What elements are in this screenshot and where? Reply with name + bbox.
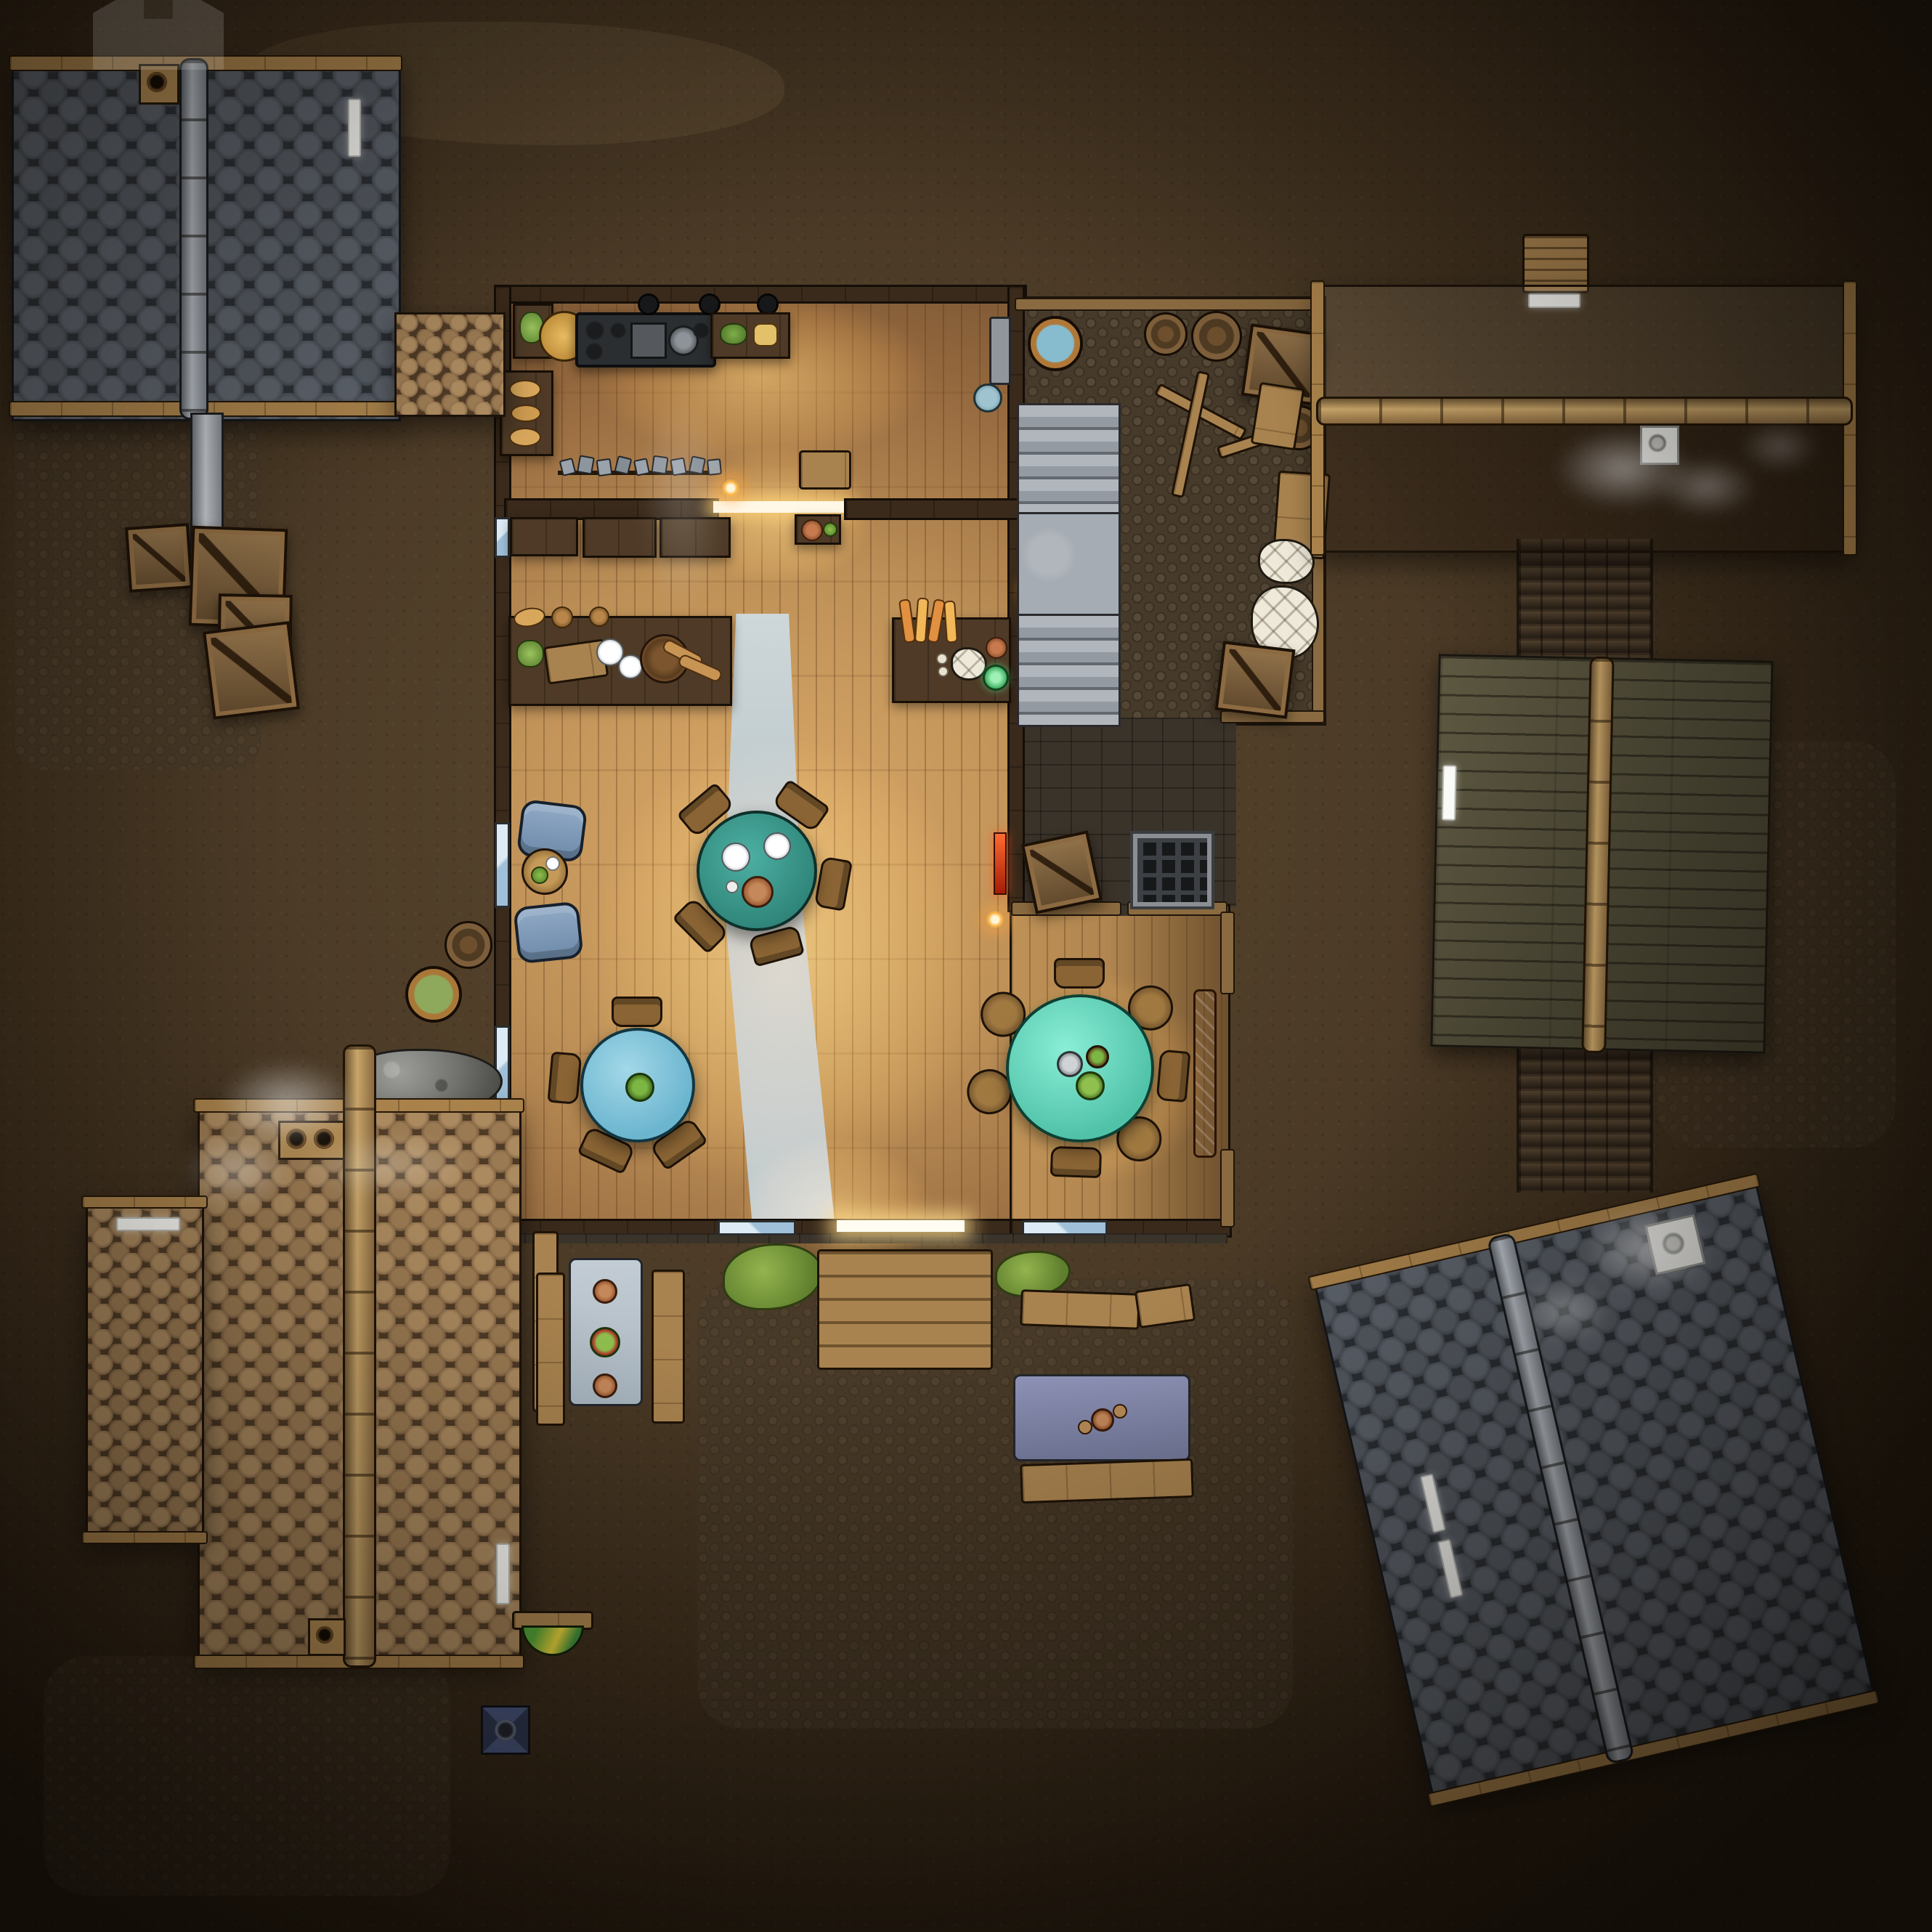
garlic: [936, 653, 948, 665]
chair: [1050, 1146, 1102, 1178]
skylight: [1442, 765, 1457, 820]
skylight: [496, 1543, 510, 1604]
cup: [726, 880, 739, 893]
porch-lantern: [985, 909, 1005, 930]
divider-wall-east: [844, 498, 1027, 520]
skylight: [1528, 293, 1580, 308]
stairs-landing: [1017, 512, 1121, 618]
chair: [1054, 958, 1105, 989]
plate: [618, 654, 643, 679]
bench: [536, 1273, 565, 1426]
building-sw-small-roof: [86, 1200, 204, 1540]
porch-rail: [1220, 912, 1235, 994]
barrel: [1191, 311, 1242, 362]
skylight: [348, 99, 361, 157]
porch-rail: [1220, 1149, 1235, 1227]
potted-plant: [625, 1073, 654, 1102]
building-sw-chimney: [308, 1618, 346, 1656]
chimney-flue: [1648, 434, 1667, 452]
west-window: [495, 517, 510, 558]
chimney-flue: [1660, 1230, 1687, 1257]
south-window: [718, 1220, 796, 1235]
plate: [763, 832, 791, 860]
bagel: [589, 606, 609, 627]
red-wall-banner: [994, 832, 1007, 895]
cheese-slices: [753, 323, 778, 346]
bread-loaf: [509, 380, 541, 399]
flour-sack: [1258, 539, 1315, 584]
lean-to-ridge-beam: [1581, 657, 1614, 1054]
herb-counter: [710, 312, 790, 359]
crate: [203, 621, 300, 720]
salad-greens: [516, 640, 544, 667]
bar-cabinet: [659, 517, 731, 558]
side-table: [521, 848, 568, 895]
south-foundation: [494, 1233, 1227, 1243]
jam-jar: [986, 637, 1007, 659]
bench: [1020, 1458, 1194, 1503]
plate: [721, 843, 750, 872]
skylight: [116, 1217, 180, 1231]
tavern-building: [494, 283, 1402, 1249]
crate: [1215, 641, 1296, 718]
building-se: [1313, 1180, 1871, 1798]
barrel: [1144, 312, 1188, 356]
west-window: [495, 822, 510, 908]
porch-window: [1022, 1220, 1108, 1235]
terracotta-plate: [801, 519, 823, 541]
bench: [652, 1270, 685, 1424]
west-awning-roof: [394, 312, 506, 417]
south-door-opening: [837, 1220, 965, 1232]
bread-loaf: [509, 428, 541, 447]
outdoor-table-east: [1013, 1374, 1190, 1461]
tankard-icon: [707, 458, 722, 476]
tankard-icon: [596, 458, 612, 477]
tankard-icon: [689, 455, 706, 475]
building-sw-small-eave: [81, 1531, 208, 1544]
stove-burner: [585, 343, 603, 360]
dining-table-porch: [1006, 994, 1154, 1142]
bread-shelf: [500, 370, 553, 456]
bowl: [593, 1373, 617, 1398]
potted-plant: [1076, 1071, 1105, 1100]
stove-hatch: [630, 322, 667, 359]
tankard-icon: [577, 455, 595, 474]
cellar-grate: [1133, 834, 1211, 906]
chimney-flue: [316, 1626, 333, 1644]
battle-map-canvas: [0, 0, 1932, 1932]
brazier-bowl: [495, 1719, 516, 1741]
candle-tray: [1057, 1051, 1083, 1077]
stove-burner: [585, 321, 604, 340]
dish: [545, 856, 560, 871]
painted-shield: [521, 1625, 584, 1656]
bench: [1020, 1289, 1140, 1330]
mug: [1078, 1420, 1092, 1434]
salad-bowl: [531, 866, 548, 884]
bar-cabinet: [510, 517, 578, 556]
tankard-icon: [670, 457, 687, 476]
stone-stairs-lower: [1017, 614, 1121, 727]
outdoor-table-west: [569, 1258, 643, 1406]
stove-burner: [693, 322, 709, 338]
building-ne-chimney: [1640, 426, 1679, 465]
hanging-pot: [638, 293, 659, 315]
dining-table-west: [580, 1028, 695, 1142]
side-shelf: [795, 514, 841, 545]
entry-steps: [817, 1249, 993, 1370]
crate: [125, 523, 193, 593]
building-sw-small-eave: [81, 1196, 208, 1209]
glowing-plate: [983, 665, 1009, 691]
iron-stove: [575, 312, 716, 368]
garlic: [938, 666, 949, 677]
crate: [1021, 830, 1103, 914]
stove-burner: [610, 322, 626, 338]
chair: [547, 1052, 582, 1105]
cobble-patch: [44, 1656, 450, 1896]
tankard-rack: [558, 453, 725, 482]
dining-table-north: [697, 811, 817, 931]
lean-to-roof: [1430, 654, 1773, 1054]
rain-barrel: [1028, 316, 1083, 371]
tankard-icon: [633, 458, 650, 476]
chimney-flue: [147, 72, 167, 92]
trestle-table: [1193, 989, 1217, 1158]
barrel: [445, 921, 492, 969]
flower-pot: [823, 522, 837, 537]
house-logo-icon: [93, 0, 224, 70]
building-sw-ridge-beam: [343, 1044, 376, 1668]
brazier-plate: [481, 1705, 530, 1755]
mug-tray: [1091, 1408, 1114, 1432]
chair: [1156, 1050, 1191, 1103]
tankard-icon: [651, 455, 668, 475]
blue-plate: [973, 383, 1002, 413]
tankard-icon: [559, 458, 577, 476]
bar-cabinet: [583, 517, 657, 558]
lumber-piece: [1251, 382, 1305, 451]
chair: [612, 997, 662, 1027]
wash-basin: [989, 317, 1011, 385]
bowl: [593, 1279, 617, 1304]
flour-sack: [951, 647, 987, 681]
brew-vat: [405, 966, 462, 1023]
building-nw-chimney: [139, 64, 179, 105]
divider-doorway: [713, 501, 845, 513]
bar-counter: [508, 616, 732, 706]
potted-plant: [1086, 1045, 1109, 1068]
herbs: [720, 323, 747, 345]
stone-stairs-upper: [1017, 403, 1121, 516]
building-sw-chimney-double: [278, 1121, 345, 1160]
bench: [1135, 1283, 1196, 1328]
building-ne-ridge-beam: [1316, 397, 1853, 426]
candle-lantern: [721, 478, 741, 498]
bread-loaf: [511, 405, 541, 422]
mug: [1113, 1404, 1127, 1418]
cobble-patch: [697, 1278, 1293, 1729]
baguette-counter: [892, 617, 1011, 703]
chimney-flue: [314, 1129, 334, 1149]
armchair: [513, 901, 584, 965]
building-nw-ridge: [179, 58, 208, 420]
hanging-sign: [799, 450, 851, 490]
flower-bowl: [590, 1327, 620, 1357]
yard-fence-north: [1015, 298, 1325, 311]
terracotta-bowl: [742, 876, 774, 908]
bagel: [551, 606, 573, 628]
tankard-icon: [614, 455, 633, 475]
chimney-flue: [286, 1129, 307, 1149]
